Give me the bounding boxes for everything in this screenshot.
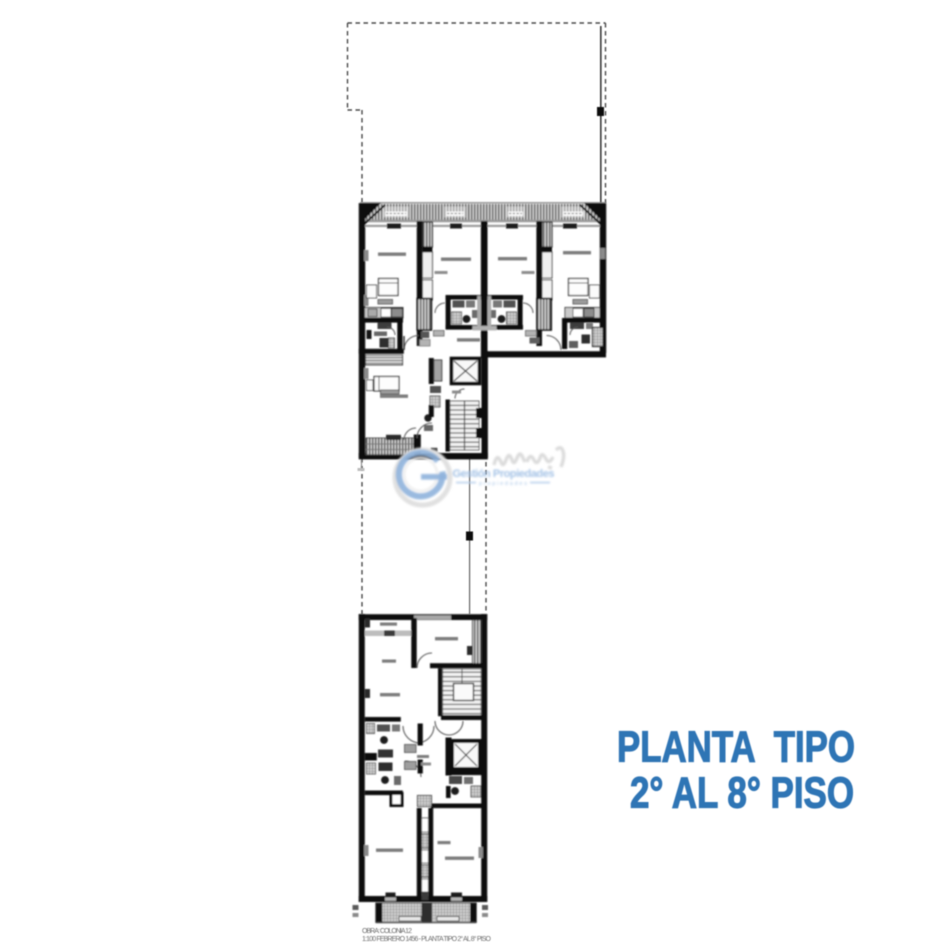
svg-text:PLANTA TIPO: PLANTA TIPO xyxy=(617,723,855,772)
svg-text:p r o p i e d a d e s: p r o p i e d a d e s xyxy=(479,481,527,487)
svg-text:OBRA: COLONIA 12: OBRA: COLONIA 12 xyxy=(362,928,412,935)
svg-text:2° AL 8° PISO: 2° AL 8° PISO xyxy=(630,769,854,818)
svg-text:Gestión Propiedades: Gestión Propiedades xyxy=(453,468,555,480)
svg-text:1:100 FEBRERO 1456 - PLANTA TI: 1:100 FEBRERO 1456 - PLANTA TIPO 2° AL 8… xyxy=(362,935,492,943)
